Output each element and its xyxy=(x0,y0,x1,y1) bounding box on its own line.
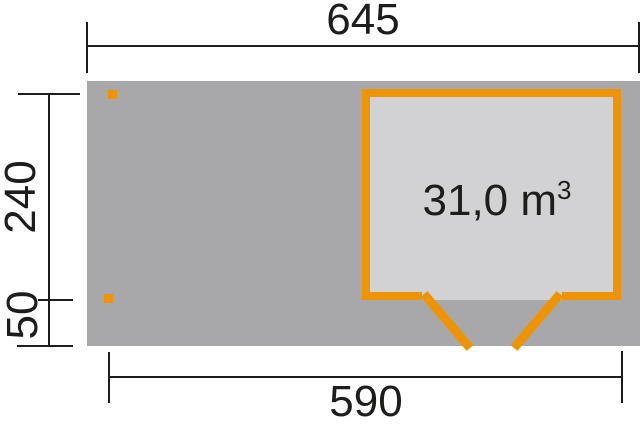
dimension-tick xyxy=(17,345,73,347)
volume-label: 31,0 m3 xyxy=(423,179,572,223)
door-leaf-right-icon xyxy=(514,294,560,348)
dimension-label-top-width: 645 xyxy=(326,0,399,42)
dimension-label-left-height: 240 xyxy=(0,160,43,233)
volume-exponent: 3 xyxy=(557,175,571,205)
post-marker-top xyxy=(108,90,117,99)
door-leaf-left-icon xyxy=(424,294,470,348)
dimension-line-top xyxy=(87,45,640,47)
post-marker-bottom xyxy=(104,294,113,303)
dimension-tick xyxy=(108,352,110,403)
dimension-tick xyxy=(621,351,623,403)
dimension-line-left xyxy=(48,94,50,347)
volume-value: 31,0 m xyxy=(423,176,558,225)
dimension-label-bottom-width: 590 xyxy=(329,380,402,424)
floor-plan-diagram: 645 240 50 590 31,0 m3 xyxy=(0,0,641,426)
dimension-tick xyxy=(638,22,640,73)
dimension-tick xyxy=(86,22,88,73)
dimension-tick xyxy=(18,93,80,95)
dimension-label-left-depth: 50 xyxy=(1,291,45,340)
